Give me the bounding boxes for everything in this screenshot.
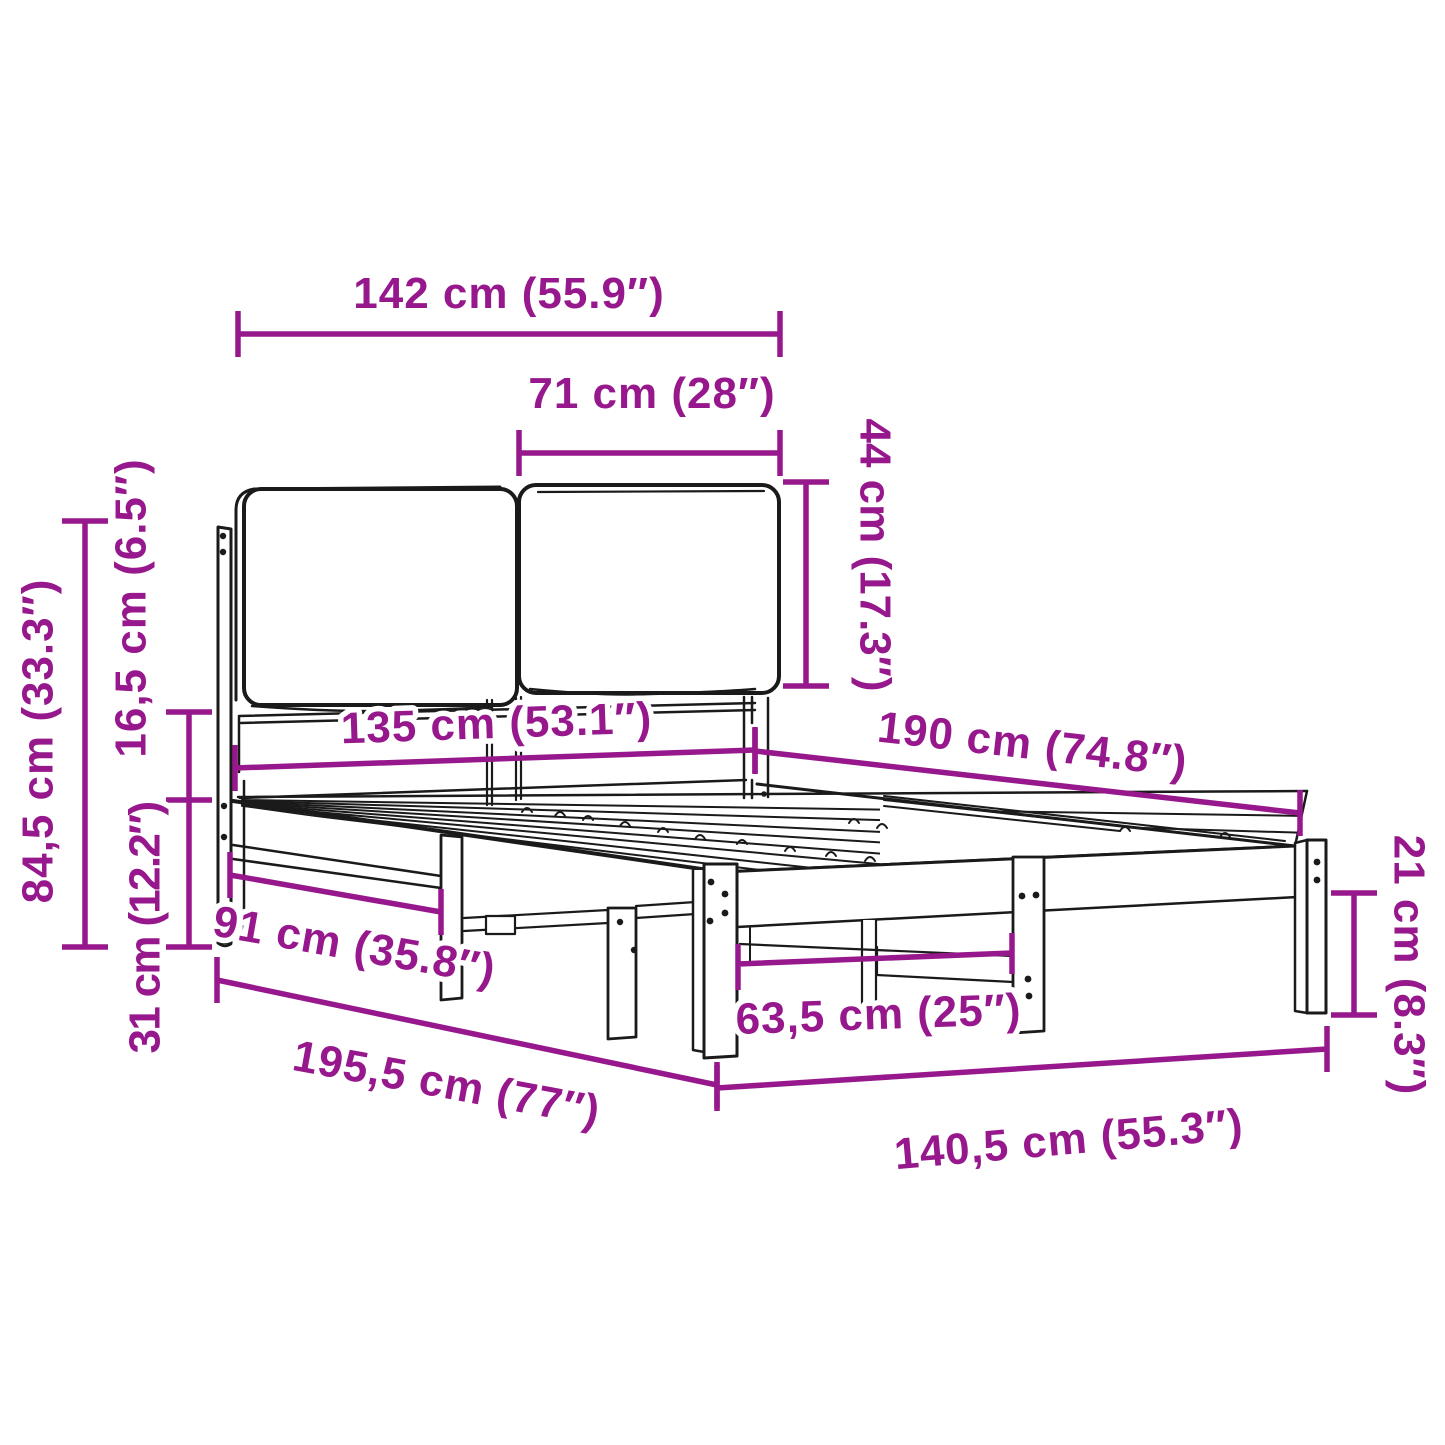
svg-text:44 cm (17.3″): 44 cm (17.3″) (850, 418, 899, 691)
svg-text:84,5 cm (33.3″): 84,5 cm (33.3″) (14, 579, 63, 904)
svg-text:142 cm (55.9″): 142 cm (55.9″) (353, 269, 664, 318)
svg-text:71 cm (28″): 71 cm (28″) (528, 369, 775, 418)
svg-text:21 cm (8.3″): 21 cm (8.3″) (1384, 835, 1433, 1096)
svg-text:63,5 cm (25″): 63,5 cm (25″) (735, 985, 1023, 1044)
svg-text:16,5 cm (6.5″): 16,5 cm (6.5″) (107, 458, 156, 757)
svg-text:31 cm (12.2″): 31 cm (12.2″) (121, 803, 170, 1054)
